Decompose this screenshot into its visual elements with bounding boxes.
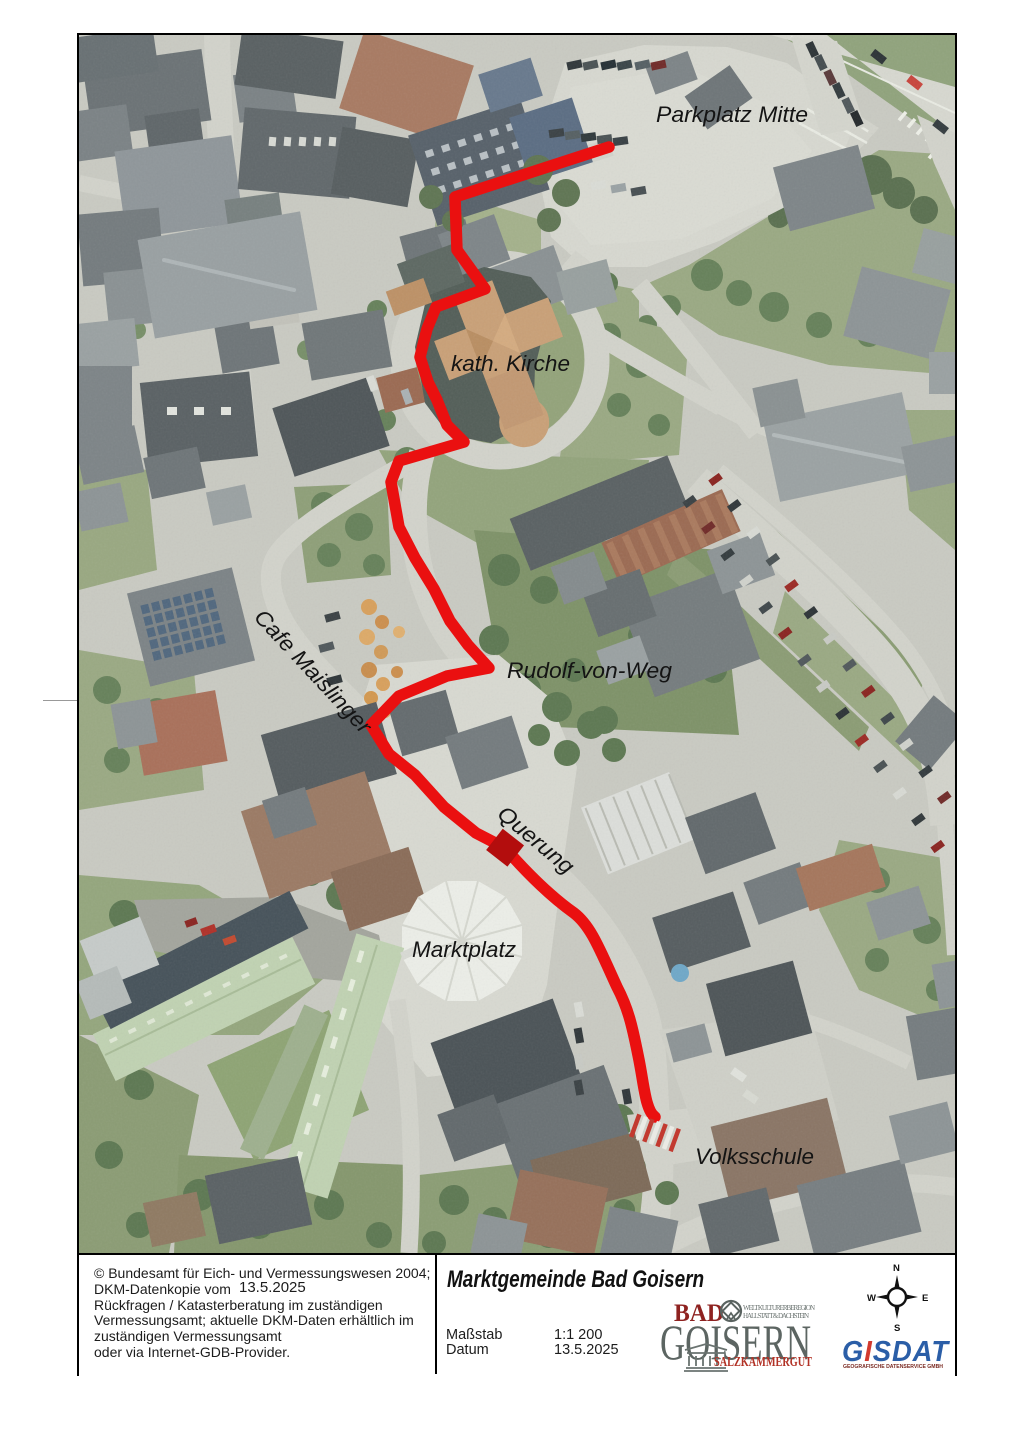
svg-text:E: E bbox=[922, 1293, 928, 1304]
svg-text:Parkplatz Mitte: Parkplatz Mitte bbox=[656, 102, 808, 127]
svg-text:SALZKAMMERGUT: SALZKAMMERGUT bbox=[714, 1355, 812, 1370]
svg-text:N: N bbox=[893, 1263, 900, 1274]
svg-text:WELTKULTURERBEREGION: WELTKULTURERBEREGION bbox=[743, 1304, 815, 1312]
svg-text:kath. Kirche: kath. Kirche bbox=[451, 351, 570, 376]
svg-text:W: W bbox=[867, 1293, 876, 1304]
svg-text:Volksschule: Volksschule bbox=[695, 1144, 814, 1169]
svg-text:GEOGRAFISCHE DATENSERVICE GMBH: GEOGRAFISCHE DATENSERVICE GMBH bbox=[843, 1364, 943, 1370]
svg-text:Rudolf-von-Weg: Rudolf-von-Weg bbox=[507, 658, 673, 683]
svg-text:S: S bbox=[894, 1323, 900, 1334]
svg-text:Marktplatz: Marktplatz bbox=[412, 937, 516, 962]
